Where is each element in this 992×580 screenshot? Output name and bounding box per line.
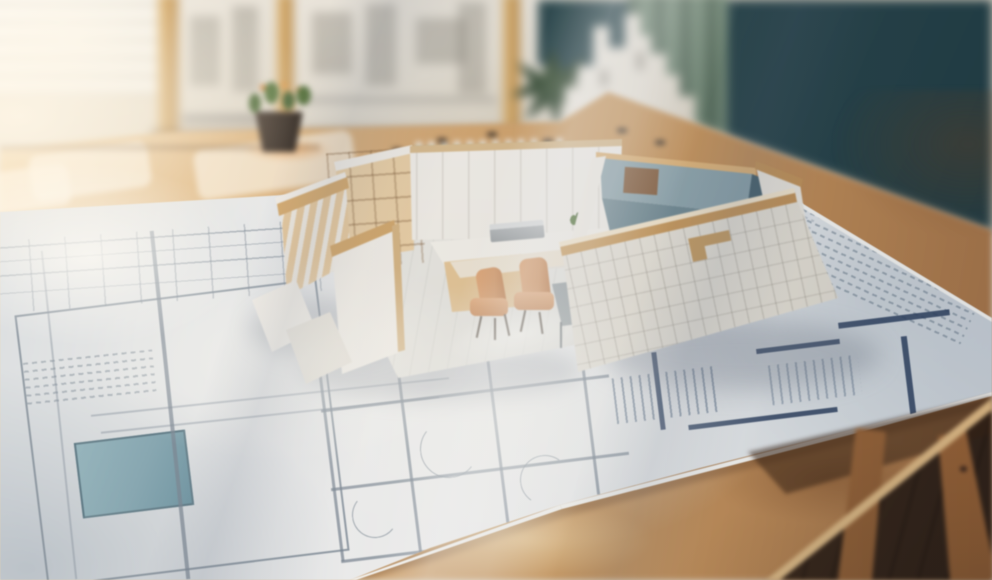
photo-canvas	[0, 0, 992, 580]
color-grade-vignette	[0, 0, 992, 580]
